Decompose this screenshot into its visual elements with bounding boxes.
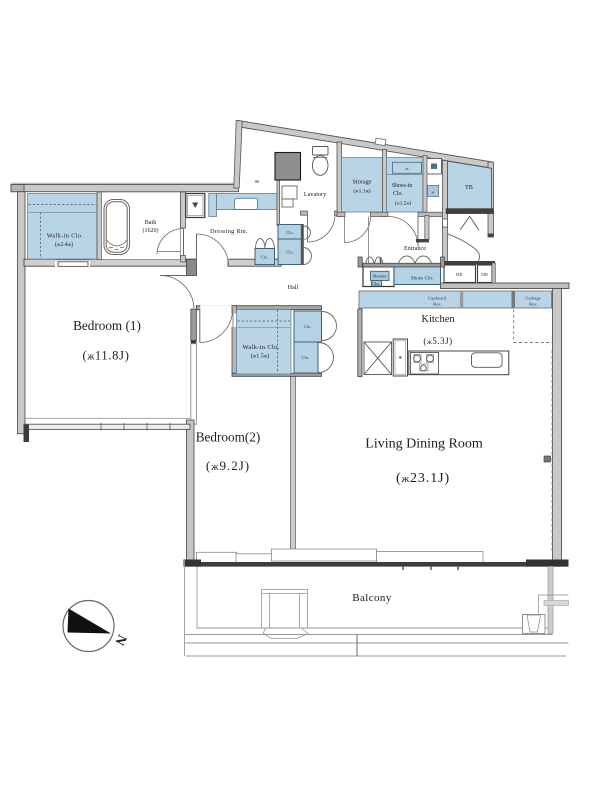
svg-text:Walk-in Clo.: Walk-in Clo. — [242, 344, 279, 351]
svg-text:Shoes Clo.: Shoes Clo. — [411, 276, 433, 282]
svg-text:(ж23.1J): (ж23.1J) — [396, 471, 450, 486]
svg-text:Bedroom(2): Bedroom(2) — [196, 430, 260, 445]
svg-text:Clo.: Clo. — [261, 255, 269, 260]
svg-text:MB: MB — [481, 272, 488, 277]
svg-text:(ж1.5ж): (ж1.5ж) — [251, 353, 269, 360]
svg-text:(ж5.3J): (ж5.3J) — [423, 336, 452, 346]
svg-text:Clo.: Clo. — [304, 324, 312, 329]
svg-text:Dressing Rm.: Dressing Rm. — [210, 228, 248, 235]
svg-text:(ж1.2ж): (ж1.2ж) — [395, 200, 412, 207]
svg-text:Bedroom (1): Bedroom (1) — [73, 318, 141, 333]
svg-text:Clo.: Clo. — [302, 355, 310, 360]
svg-text:MB: MB — [456, 272, 463, 277]
svg-text:ж: ж — [431, 190, 435, 195]
svg-text:Kitchen: Kitchen — [421, 314, 455, 325]
svg-text:(ж2.4ж): (ж2.4ж) — [55, 241, 73, 248]
svg-text:(1620): (1620) — [143, 227, 159, 234]
svg-text:Cupboard: Cupboard — [428, 296, 447, 301]
svg-text:Entrance: Entrance — [404, 245, 426, 252]
svg-text:(ж11.8J): (ж11.8J) — [82, 349, 129, 363]
svg-text:Shoes-in: Shoes-in — [392, 183, 412, 189]
svg-text:Balcony: Balcony — [352, 592, 392, 604]
svg-text:Hall: Hall — [288, 284, 299, 291]
svg-text:Living Dining Room: Living Dining Room — [365, 437, 483, 452]
svg-text:Clo.: Clo. — [286, 250, 294, 255]
svg-text:(ж1.1ж): (ж1.1ж) — [353, 188, 370, 195]
svg-text:Storage: Storage — [353, 179, 372, 186]
svg-text:Bath: Bath — [145, 219, 158, 226]
svg-text:Walk-in Clo.: Walk-in Clo. — [47, 233, 84, 240]
svg-text:Lavatory: Lavatory — [304, 191, 327, 198]
svg-text:Clo.: Clo. — [286, 230, 294, 235]
svg-text:Box: Box — [433, 302, 441, 307]
svg-text:Box: Box — [529, 302, 537, 307]
svg-text:Clo.: Clo. — [372, 281, 380, 286]
svg-text:Broom: Broom — [373, 274, 386, 279]
svg-text:Garbage: Garbage — [525, 296, 541, 301]
svg-text:Clo.: Clo. — [393, 191, 403, 197]
svg-text:TB: TB — [465, 184, 473, 191]
